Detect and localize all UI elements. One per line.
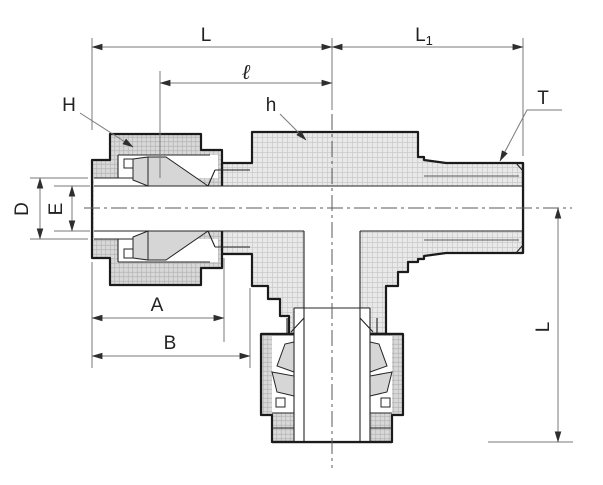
dim-label-A: A	[151, 295, 164, 316]
dim-label-T: T	[537, 88, 549, 109]
body-outline	[222, 132, 523, 334]
dim-label-L-vertical: L	[533, 322, 554, 333]
dim-label-E: E	[46, 203, 67, 216]
dim-label-D: D	[12, 202, 33, 216]
dim-label-B: B	[164, 333, 177, 354]
fitting-body	[222, 132, 523, 334]
fitting-cross-section-drawing: L L1 ℓ H h T D E A	[0, 0, 603, 485]
technical-drawing-page: L L1 ℓ H h T D E A	[0, 0, 603, 485]
dim-label-L1: L1	[415, 25, 433, 48]
dimension-B-nut-body: B	[92, 288, 250, 368]
dim-label-h: h	[266, 95, 277, 116]
dim-label-L: L	[201, 25, 212, 46]
label-T-thread: T	[500, 88, 562, 161]
dimension-L-run-left: L	[92, 25, 332, 130]
dimension-E-bore: E	[46, 186, 90, 231]
dim-label-l: ℓ	[242, 60, 251, 84]
dim-label-H: H	[62, 95, 76, 116]
